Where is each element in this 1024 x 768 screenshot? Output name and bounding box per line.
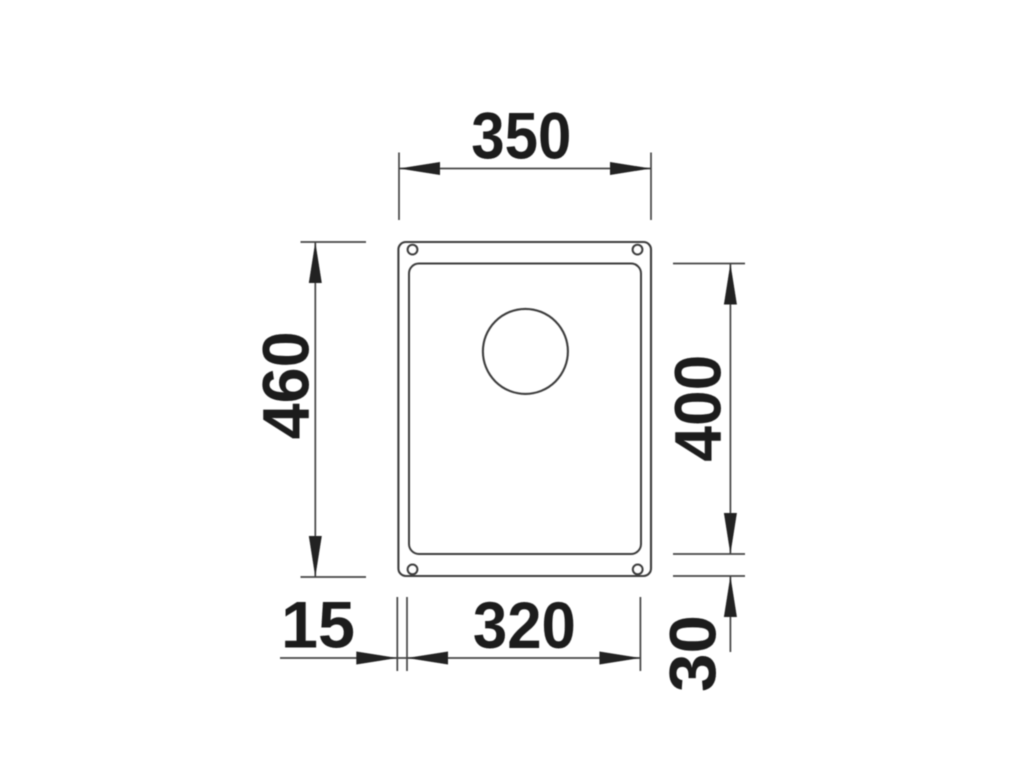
svg-text:350: 350 <box>471 99 571 173</box>
svg-text:30: 30 <box>656 615 730 692</box>
svg-text:460: 460 <box>248 331 322 439</box>
svg-text:15: 15 <box>281 588 355 662</box>
svg-text:400: 400 <box>661 355 735 462</box>
svg-text:320: 320 <box>473 588 576 662</box>
